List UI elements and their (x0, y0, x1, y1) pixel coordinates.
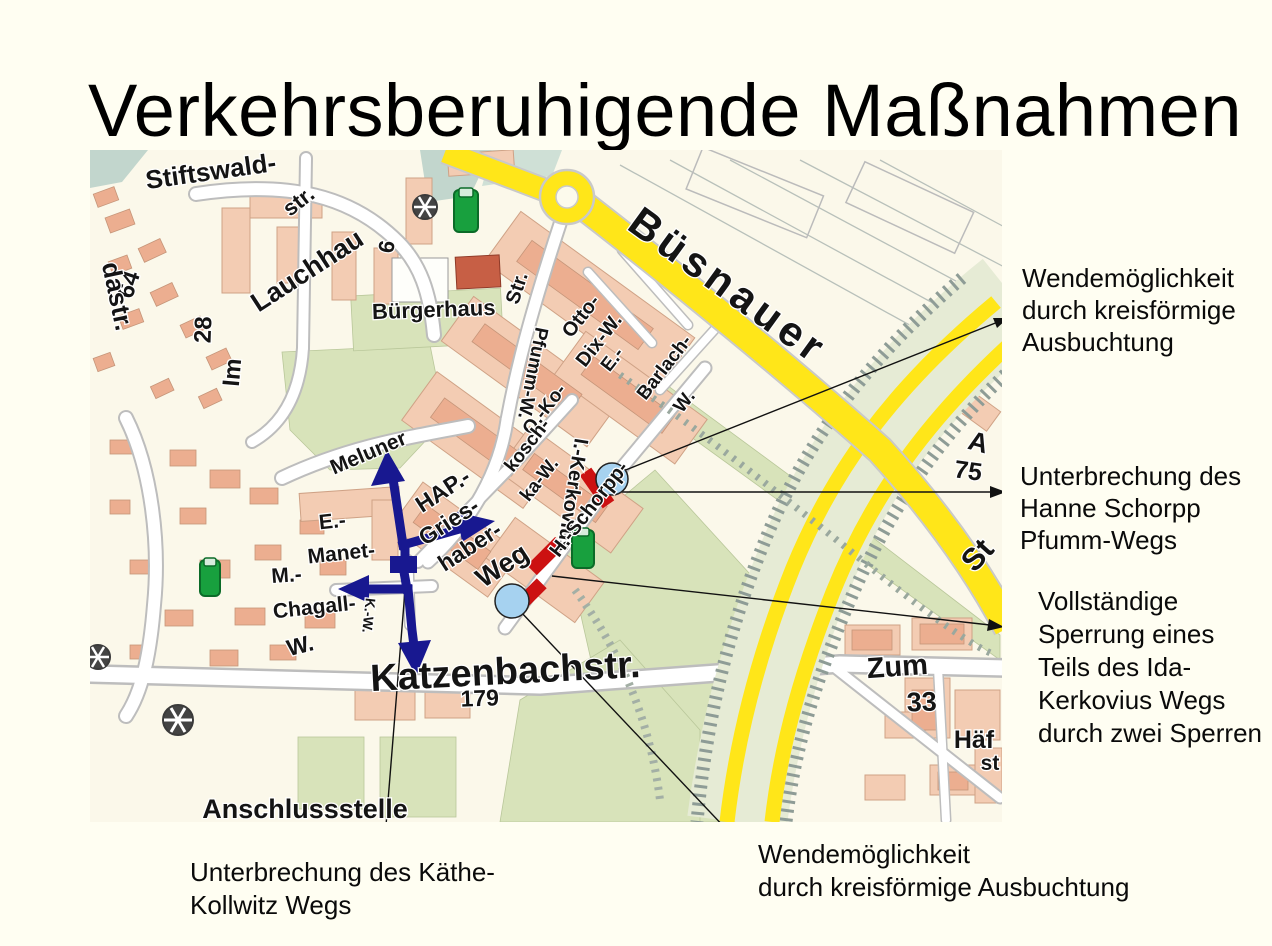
annotation-line: durch kreisförmige (1022, 294, 1236, 326)
annotation-kerkovius-closure: Vollständige Sperrung eines Teils des Id… (1038, 585, 1262, 750)
street-label-29: M.- (271, 563, 303, 588)
annotation-line: Sperrung eines (1038, 618, 1262, 651)
page-title: Verkehrsberuhigende Maßnahmen (88, 74, 1242, 148)
map-svg: Stiftswald-str.LauchhauIm2864dastr.6Bürg… (90, 150, 1002, 822)
recycling-container-icon (454, 188, 478, 232)
street-label-35: Anschlussstelle (202, 794, 408, 822)
street-label-39: st (981, 752, 1000, 775)
annotation-line: Wendemöglichkeit (1022, 262, 1236, 294)
recycling-container-icon (200, 558, 220, 596)
annotation-line: durch zwei Sperren (1038, 717, 1262, 750)
annotation-line: Vollständige (1038, 585, 1262, 618)
street-label-41: 75 (952, 455, 984, 487)
street-label-34: 179 (460, 684, 499, 711)
street-label-36: Zum (866, 649, 929, 685)
playground-icon (413, 195, 437, 219)
annotation-line: Kerkovius Wegs (1038, 684, 1262, 717)
blue-arrow-down (408, 589, 414, 646)
annotation-line: Unterbrechung des Käthe- (190, 856, 495, 889)
playground-icon (90, 645, 110, 669)
annotation-line: Kollwitz Wegs (190, 889, 495, 922)
annotation-line: Unterbrechung des (1020, 460, 1241, 492)
slide: { "title": "Verkehrsberuhigende Maßnahme… (0, 0, 1272, 946)
street-label-38: Häf (954, 726, 995, 754)
annotation-line: Ausbuchtung (1022, 326, 1236, 358)
street-label-3: Im (218, 357, 247, 387)
turning-circle (495, 584, 529, 618)
annotation-line: Teils des Ida- (1038, 651, 1262, 684)
street-label-27: E.- (318, 509, 347, 535)
annotation-kollwitz-interruption: Unterbrechung des Käthe- Kollwitz Wegs (190, 856, 495, 922)
annotation-line: Pfumm-Wegs (1020, 524, 1241, 556)
street-label-37: 33 (906, 686, 937, 717)
annotation-schorpp-interruption: Unterbrechung des Hanne Schorpp Pfumm-We… (1020, 460, 1241, 556)
playground-icon (163, 705, 193, 735)
annotation-turning-circle-top: Wendemöglichkeit durch kreisförmige Ausb… (1022, 262, 1236, 358)
annotation-turning-circle-bottom: Wendemöglichkeit durch kreisförmige Ausb… (758, 838, 1129, 904)
annotation-line: durch kreisförmige Ausbuchtung (758, 871, 1129, 904)
traffic-map: Stiftswald-str.LauchhauIm2864dastr.6Bürg… (90, 150, 1002, 822)
annotation-line: Wendemöglichkeit (758, 838, 1129, 871)
annotation-line: Hanne Schorpp (1020, 492, 1241, 524)
street-label-8: Bürgerhaus (372, 295, 496, 324)
street-label-4: 28 (190, 316, 218, 344)
